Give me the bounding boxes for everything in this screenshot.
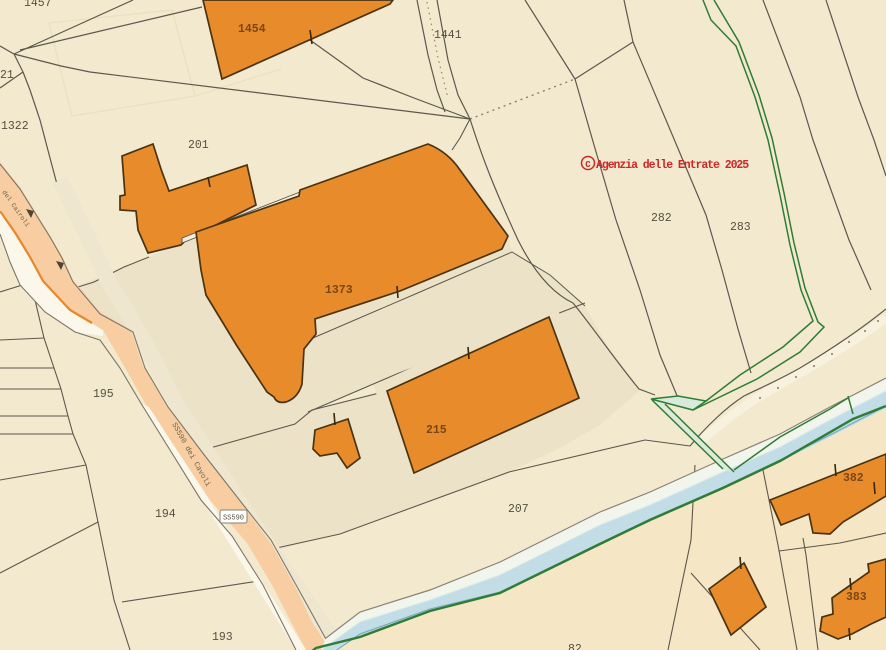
svg-text:282: 282 — [651, 212, 672, 225]
svg-text:201: 201 — [188, 139, 209, 152]
svg-text:383: 383 — [846, 591, 867, 604]
svg-text:C: C — [585, 160, 591, 170]
svg-text:194: 194 — [155, 508, 176, 521]
svg-text:Agenzia delle Entrate 2025: Agenzia delle Entrate 2025 — [596, 159, 749, 172]
svg-text:21: 21 — [0, 69, 14, 82]
svg-text:SS590: SS590 — [223, 515, 244, 523]
svg-text:382: 382 — [843, 472, 864, 485]
svg-text:207: 207 — [508, 503, 529, 516]
svg-text:215: 215 — [426, 424, 447, 437]
svg-text:193: 193 — [212, 631, 233, 644]
svg-text:1457: 1457 — [24, 0, 52, 10]
svg-text:1441: 1441 — [434, 29, 462, 42]
svg-text:1322: 1322 — [1, 120, 29, 133]
svg-text:195: 195 — [93, 388, 114, 401]
svg-text:1373: 1373 — [325, 284, 353, 297]
svg-text:82: 82 — [568, 643, 582, 650]
svg-text:283: 283 — [730, 221, 751, 234]
svg-text:1454: 1454 — [238, 23, 266, 36]
